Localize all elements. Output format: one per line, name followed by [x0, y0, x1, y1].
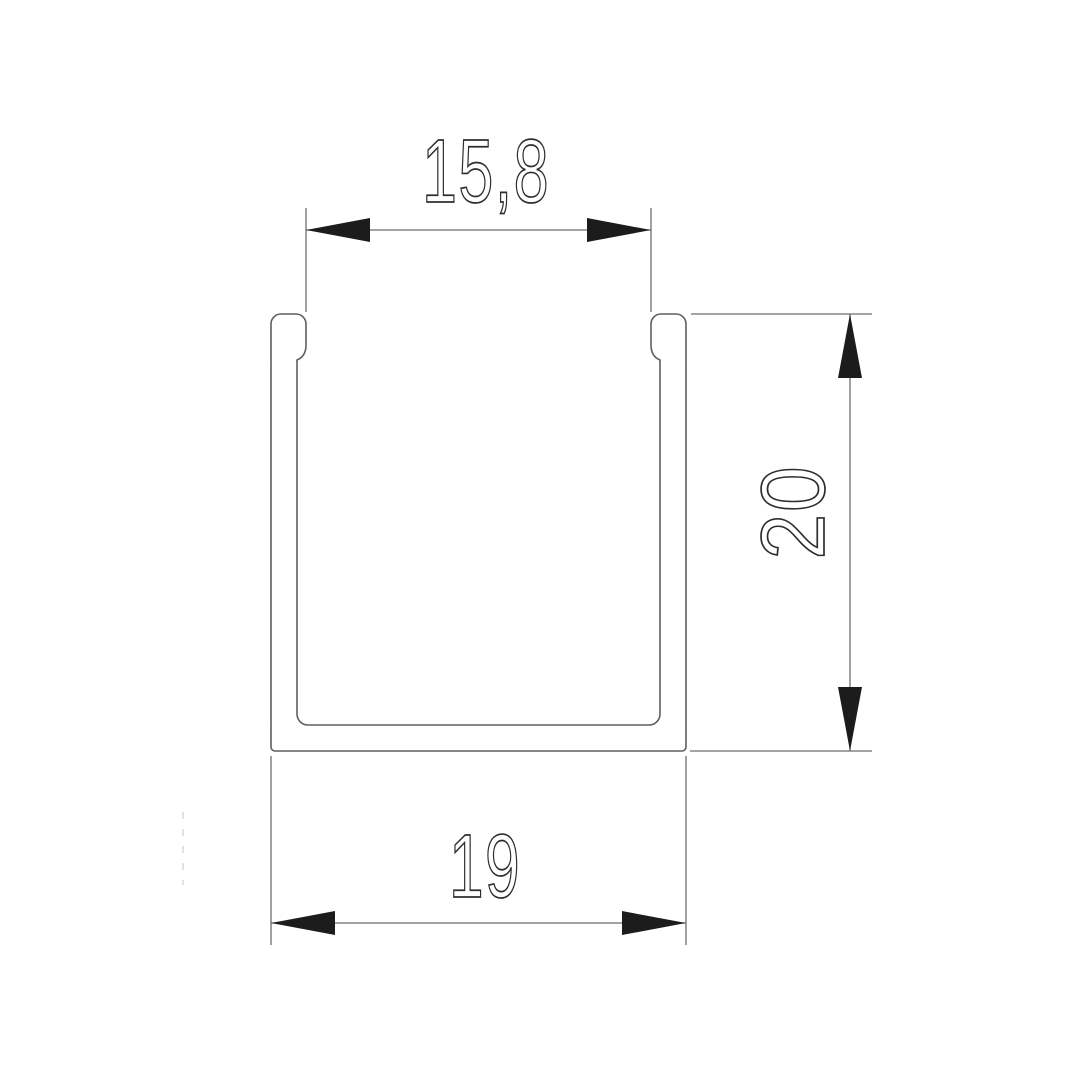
dimension-outer-width: 19 — [271, 756, 686, 945]
dimension-height: 20 — [690, 314, 872, 751]
dimension-value-top-opening: 15,8 — [422, 122, 550, 222]
dimension-top-opening: 15,8 — [306, 122, 651, 312]
dimension-value-outer-width: 19 — [449, 817, 521, 917]
arrowhead-right — [587, 218, 651, 242]
arrowhead-bottom — [838, 687, 862, 751]
arrowhead-top — [838, 314, 862, 378]
arrowhead-left — [306, 218, 370, 242]
profile-outline — [271, 314, 686, 751]
arrowhead-left — [271, 911, 335, 935]
arrowhead-right — [622, 911, 686, 935]
drawing-canvas: 15,8 20 19 — [0, 0, 1080, 1080]
dimension-value-height: 20 — [744, 465, 844, 560]
technical-drawing-svg: 15,8 20 19 — [0, 0, 1080, 1080]
